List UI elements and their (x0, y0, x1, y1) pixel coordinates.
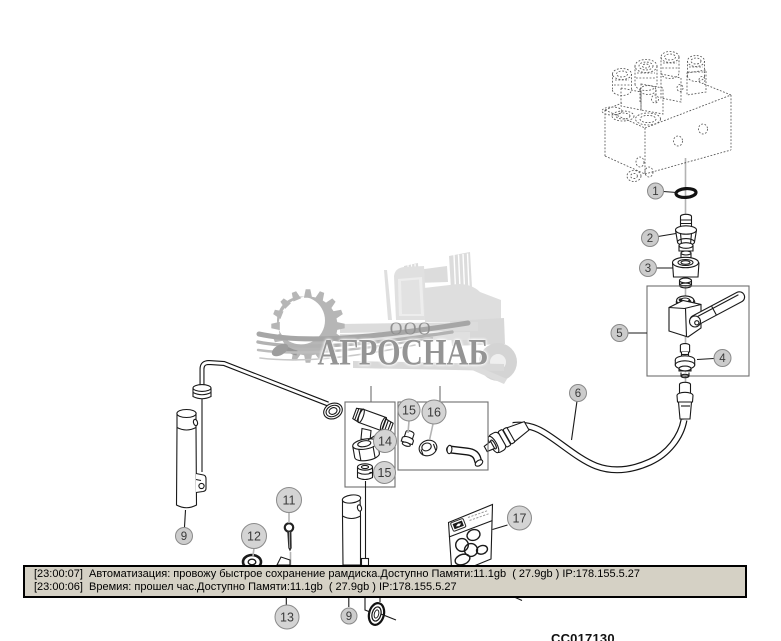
svg-text:9: 9 (181, 531, 187, 543)
svg-text:16: 16 (427, 406, 441, 420)
svg-text:12: 12 (247, 530, 261, 544)
svg-text:17: 17 (513, 512, 527, 526)
svg-text:9: 9 (346, 611, 352, 623)
svg-text:АГРОСНАБ: АГРОСНАБ (318, 333, 489, 373)
svg-text:15: 15 (402, 404, 416, 418)
svg-text:11: 11 (283, 494, 296, 508)
svg-text:6: 6 (575, 388, 581, 400)
svg-text:3: 3 (645, 263, 651, 275)
svg-text:14: 14 (378, 435, 392, 449)
svg-text:15: 15 (378, 466, 392, 480)
svg-text:1: 1 (652, 186, 658, 198)
svg-text:2: 2 (647, 233, 653, 245)
svg-text:5: 5 (616, 328, 622, 340)
svg-text:4: 4 (719, 353, 726, 365)
svg-text:13: 13 (280, 611, 294, 625)
